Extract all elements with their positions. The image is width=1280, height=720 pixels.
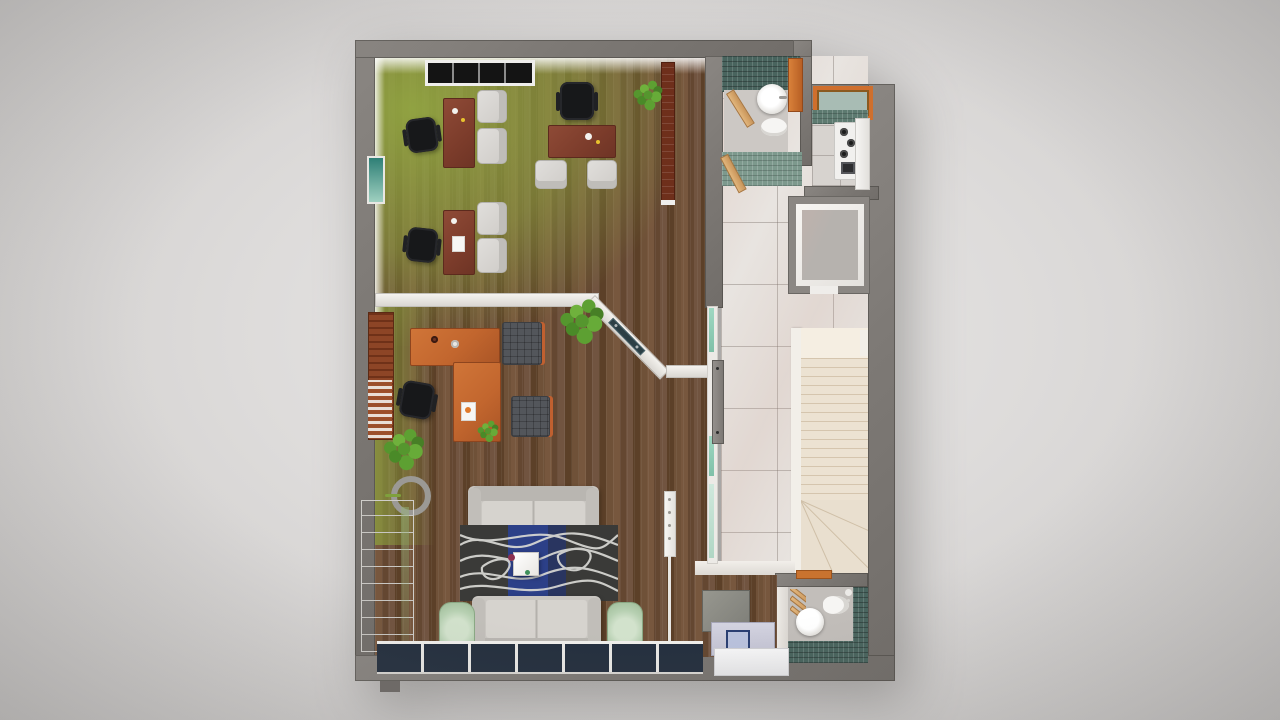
glass-panel-1 [709,308,714,352]
reception-phone [451,340,459,348]
plant-office [644,91,653,100]
task-chair-c [560,82,594,120]
stairs-landing [801,328,868,358]
radiator-rod [668,555,671,647]
bathroom-orange-partition [788,58,803,112]
stove-burner-1 [840,128,848,136]
guest-chair-b2 [477,238,507,273]
desk-c-accessory [596,140,600,144]
tall-brown-cabinet [661,62,675,202]
reception-task-chair [398,379,436,420]
sliding-door-panel [712,360,724,444]
ceiling-grille-window [425,60,535,86]
task-chair-b [405,227,438,264]
slat-accent-wall-lower [368,380,392,438]
stove-burner-2 [847,139,855,147]
guest-chair-b1 [477,202,507,235]
kitchen-counter [855,118,870,190]
plant-left [398,443,411,456]
desk-c-cup [585,133,592,140]
desk-a-cup [452,108,458,114]
guest-chair-c2 [587,160,617,189]
sofa-top-back [472,486,595,501]
desk-a-accessory [461,118,465,122]
reception-cup [431,336,438,343]
plant-reception-desk [485,428,492,435]
bathroom-top-toilet [761,118,787,136]
table-decor-green [525,570,530,575]
white-cabinet [361,500,414,652]
render-stage [0,0,1280,720]
door-handle-2 [635,345,639,349]
stove-burner-3 [840,150,848,158]
nook-navy-panel [726,630,750,650]
guest-chair-a1 [477,90,507,123]
bathroom-bottom-basin [796,608,824,636]
cabinet-glass-strip [401,507,409,643]
guest-chair-c1 [535,160,567,189]
partition-bar-left [375,293,599,307]
guest-chair-a2 [477,128,507,164]
window-wall [377,641,703,674]
closet-floor [802,210,858,280]
stairs-treads [801,358,868,500]
plant-partition [575,314,589,328]
bathroom-bottom-threshold [796,570,832,579]
partition-bar-right [666,365,710,378]
sliding-door-handle [716,367,719,370]
stove-oven [841,162,855,174]
reception-paper [461,402,476,421]
wall-panel-radiator [664,491,676,557]
nook-white-cabinet [714,648,789,676]
outer-wall-right [868,84,895,681]
bathroom-bottom-toilet [823,596,849,614]
mirror-stem [385,494,401,497]
floor-plan [355,40,895,695]
closet-door-gap [810,286,838,294]
glass-panel-3 [709,484,714,558]
bottom-wall-stub [380,681,400,692]
desk-a [443,98,475,168]
stairs-winder [801,500,868,580]
divider-wall-upper [705,56,723,308]
stairs-stringer [791,328,801,580]
tall-cabinet-base [661,200,675,205]
staircase [791,328,868,580]
lounge-armchair-1 [502,322,542,365]
bathroom-top-basin-faucet [779,96,787,99]
bathroom-bottom-tile-bottom [788,641,868,663]
task-chair-a [405,116,439,154]
table-decor-red [508,554,515,561]
shower-head [845,589,852,596]
desk-b-paper [452,236,465,252]
desk-c [548,125,616,158]
stairs-handrail-stub [860,330,868,356]
sofa-bottom-cushions [486,600,587,638]
winder-line-2 [801,500,868,578]
lounge-armchair-2 [511,396,550,437]
paper-logo [465,407,471,413]
door-handle-1 [614,323,618,327]
bathroom-top-basin [757,84,787,114]
desk-b-cup [451,218,457,224]
picture-frame [367,156,385,204]
wave-rug [460,525,618,601]
